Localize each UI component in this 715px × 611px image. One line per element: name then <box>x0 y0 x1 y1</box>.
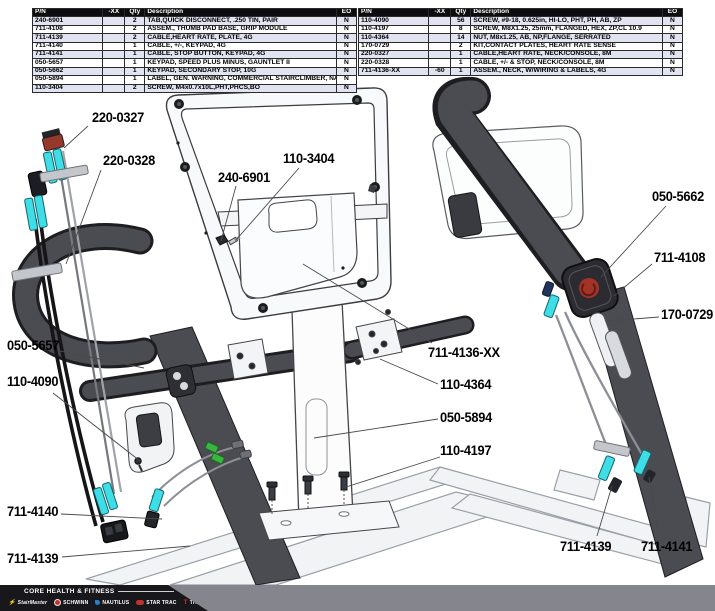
cell-qty: 1 <box>451 59 471 67</box>
table-row: 711-4136-XX-601ASSEM., NECK, W/WIRING & … <box>359 67 683 75</box>
callout-label-170-0729: 170-0729 <box>661 307 713 322</box>
cell-xx <box>103 42 125 50</box>
cell-qty: 56 <box>451 17 471 25</box>
callout-label-050-5894: 050-5894 <box>440 410 492 425</box>
callout-label-711-4141: 711-4141 <box>641 539 692 554</box>
logo-nautilus: NAUTILUS <box>95 600 129 606</box>
pill-logo-icon <box>136 600 144 605</box>
leader-line-110-4364 <box>380 359 438 384</box>
cell-xx <box>429 50 451 58</box>
cell-pn: 110-4197 <box>359 25 429 33</box>
cell-pn: 711-4136-XX <box>359 67 429 75</box>
leader-line-711-4108 <box>614 264 652 296</box>
shell-logo-icon <box>95 600 100 605</box>
leader-line-050-5662 <box>601 206 666 277</box>
cell-pn: 170-0729 <box>359 42 429 50</box>
column-header: -XX <box>103 9 125 17</box>
table-row: 170-07292KIT,CONTACT PLATES, HEART RATE … <box>359 42 683 50</box>
cell-eo: N <box>662 50 682 58</box>
cell-xx <box>103 17 125 25</box>
cell-qty: 1 <box>125 67 145 75</box>
cell-desc: SCREW, M8X1.25, 25mm, FLANGED, HEX, ZP,C… <box>471 25 663 33</box>
cell-xx <box>103 50 125 58</box>
cell-desc: ASSEM., THUMB PAD BASE, GRIP MODULE <box>145 25 337 33</box>
table-row: 220-03271CABLE,HEART RATE, NECK/CONSOLE,… <box>359 50 683 58</box>
cell-eo: N <box>336 42 356 50</box>
speed-keypad-bracket <box>125 403 174 473</box>
column-header: EO <box>336 9 356 17</box>
column-header: Qty <box>451 9 471 17</box>
callout-label-711-4139: 711-4139 <box>7 551 58 566</box>
cell-pn: 110-4364 <box>359 34 429 42</box>
cell-desc: ASSEM., NECK, W/WIRING & LABELS, 4G <box>471 67 663 75</box>
cell-eo: N <box>662 17 682 25</box>
callout-label-711-4108: 711-4108 <box>654 250 705 265</box>
cell-desc: NUT, M8x1.25, AB, NP,FLANGE, SERRATED <box>471 34 663 42</box>
circle-logo-icon <box>54 599 61 606</box>
cell-pn: 711-4141 <box>33 50 103 58</box>
table-row: 711-41392CABLE,HEART RATE, PLATE, 4GN <box>33 34 357 42</box>
callout-label-050-5662: 050-5662 <box>652 189 704 204</box>
cell-eo: N <box>336 25 356 33</box>
table-row: 110-34042SCREW, M4x0.7x10L,PHT,PHCS,BON <box>33 84 357 92</box>
column-header: P/N <box>359 9 429 17</box>
cell-eo: N <box>662 34 682 42</box>
cell-eo: N <box>662 25 682 33</box>
cell-xx <box>103 25 125 33</box>
cell-pn: 240-6901 <box>33 17 103 25</box>
cell-eo: N <box>336 84 356 92</box>
cell-qty: 1 <box>125 76 145 84</box>
cell-qty: 1 <box>125 50 145 58</box>
cell-pn: 711-4139 <box>33 34 103 42</box>
cell-xx <box>103 76 125 84</box>
cell-desc: CABLE,HEART RATE, PLATE, 4G <box>145 34 337 42</box>
cell-xx <box>103 34 125 42</box>
cell-pn: 050-5894 <box>33 76 103 84</box>
cell-eo: N <box>336 76 356 84</box>
parts-table-right: P/N-XXQtyDescriptionEO110-409056SCREW, #… <box>358 8 683 76</box>
cell-pn: 110-4090 <box>359 17 429 25</box>
brand-line: CORE HEALTH & FITNESS <box>24 588 174 595</box>
callout-label-050-5657: 050-5657 <box>7 338 59 353</box>
column-header: P/N <box>33 9 103 17</box>
cell-qty: 14 <box>451 34 471 42</box>
cell-desc: KEYPAD, SPEED PLUS MINUS, GAUNTLET II <box>145 59 337 67</box>
column-header: Description <box>145 9 337 17</box>
cell-xx <box>429 17 451 25</box>
callout-label-711-4140: 711-4140 <box>7 504 58 519</box>
cell-eo: N <box>336 34 356 42</box>
table-row: 050-58941LABEL, GEN. WARNING, COMMERCIAL… <box>33 76 357 84</box>
cell-xx <box>429 34 451 42</box>
callout-label-110-4090: 110-4090 <box>7 374 58 389</box>
callout-label-110-3404: 110-3404 <box>283 151 334 166</box>
cell-eo: N <box>336 59 356 67</box>
cell-qty: 2 <box>125 25 145 33</box>
cell-desc: SCREW, M4x0.7x10L,PHT,PHCS,BO <box>145 84 337 92</box>
cell-qty: 2 <box>125 84 145 92</box>
cell-pn: 110-3404 <box>33 84 103 92</box>
callout-label-220-0328: 220-0328 <box>103 153 155 168</box>
cell-pn: 050-5662 <box>33 67 103 75</box>
cell-eo: N <box>662 42 682 50</box>
table-row: 220-03281CABLE, +/- & STOP, NECK/CONSOLE… <box>359 59 683 67</box>
cell-eo: N <box>336 50 356 58</box>
logo-star-trac: STAR TRAC <box>136 600 176 606</box>
column-header: Description <box>471 9 663 17</box>
callout-label-240-6901: 240-6901 <box>218 170 270 185</box>
table-row: 110-436414NUT, M8x1.25, AB, NP,FLANGE, S… <box>359 34 683 42</box>
cell-eo: N <box>336 17 356 25</box>
table-row: 240-69012TAB,QUICK DISCONNECT, .250 TIN,… <box>33 17 357 25</box>
logo-text: NAUTILUS <box>102 600 129 606</box>
table-row: 711-41401CABLE, +/-, KEYPAD, 4GN <box>33 42 357 50</box>
callout-label-220-0327: 220-0327 <box>92 110 144 125</box>
table-row: 711-41411CABLE, STOP BUTTON, KEYPAD, 4GN <box>33 50 357 58</box>
logo-text: STAR TRAC <box>146 600 176 606</box>
t-logo-icon: T <box>184 599 188 606</box>
callout-label-110-4197: 110-4197 <box>440 443 491 458</box>
bolt-logo-icon: ⚡ <box>8 599 16 606</box>
table-row: 050-56621KEYPAD, SECONDARY STOP, 10GN <box>33 67 357 75</box>
cell-desc: CABLE, +/-, KEYPAD, 4G <box>145 42 337 50</box>
cell-eo: N <box>336 67 356 75</box>
cell-xx <box>103 59 125 67</box>
cell-qty: 1 <box>125 42 145 50</box>
cell-eo: N <box>662 67 682 75</box>
cell-qty: 1 <box>125 59 145 67</box>
cell-pn: 711-4108 <box>33 25 103 33</box>
column-header: -XX <box>429 9 451 17</box>
cell-desc: KEYPAD, SECONDARY STOP, 10G <box>145 67 337 75</box>
logo-text: SCHWINN <box>63 600 88 606</box>
brand-rule <box>118 591 174 592</box>
cell-desc: LABEL, GEN. WARNING, COMMERCIAL STAIRCLI… <box>145 76 337 84</box>
cell-xx <box>429 59 451 67</box>
cell-xx <box>103 84 125 92</box>
cell-qty: 2 <box>125 34 145 42</box>
table-row: 110-41978SCREW, M8X1.25, 25mm, FLANGED, … <box>359 25 683 33</box>
cell-qty: 2 <box>125 17 145 25</box>
cell-xx <box>103 67 125 75</box>
cell-eo: N <box>662 59 682 67</box>
cell-qty: 1 <box>451 50 471 58</box>
logo-stairmaster: ⚡StairMaster <box>8 599 47 606</box>
table-row: 110-409056SCREW, #9-18, 0.625in, HI-LO, … <box>359 17 683 25</box>
logo-text: StairMaster <box>18 600 47 606</box>
cell-pn: 711-4140 <box>33 42 103 50</box>
callout-label-110-4364: 110-4364 <box>440 377 491 392</box>
cell-pn: 220-0327 <box>359 50 429 58</box>
parts-manual-page: P/N-XXQtyDescriptionEO240-69012TAB,QUICK… <box>0 0 715 611</box>
cell-xx: -60 <box>429 67 451 75</box>
cell-qty: 8 <box>451 25 471 33</box>
cell-desc: KIT,CONTACT PLATES, HEART RATE SENSE <box>471 42 663 50</box>
cell-xx <box>429 42 451 50</box>
thumb-keypad <box>165 364 197 399</box>
cell-desc: CABLE,HEART RATE, NECK/CONSOLE, 8M <box>471 50 663 58</box>
cell-desc: CABLE, +/- & STOP, NECK/CONSOLE, 8M <box>471 59 663 67</box>
callout-label-711-4139: 711-4139 <box>560 539 611 554</box>
cell-desc: SCREW, #9-18, 0.625in, HI-LO, PHT, PH, A… <box>471 17 663 25</box>
column-header: Qty <box>125 9 145 17</box>
cell-qty: 1 <box>451 67 471 75</box>
column-header: EO <box>662 9 682 17</box>
cell-qty: 2 <box>451 42 471 50</box>
callout-label-711-4136-XX: 711-4136-XX <box>428 345 500 360</box>
leader-line-220-0327 <box>64 126 88 148</box>
cell-pn: 220-0328 <box>359 59 429 67</box>
brand-name: CORE HEALTH & FITNESS <box>24 588 115 595</box>
parts-table-left: P/N-XXQtyDescriptionEO240-69012TAB,QUICK… <box>32 8 357 93</box>
table-row: 050-56571KEYPAD, SPEED PLUS MINUS, GAUNT… <box>33 59 357 67</box>
cell-desc: CABLE, STOP BUTTON, KEYPAD, 4G <box>145 50 337 58</box>
cell-xx <box>429 25 451 33</box>
cell-desc: TAB,QUICK DISCONNECT, .250 TIN, PAIR <box>145 17 337 25</box>
table-row: 711-41082ASSEM., THUMB PAD BASE, GRIP MO… <box>33 25 357 33</box>
logo-schwinn: SCHWINN <box>54 599 88 606</box>
cell-pn: 050-5657 <box>33 59 103 67</box>
